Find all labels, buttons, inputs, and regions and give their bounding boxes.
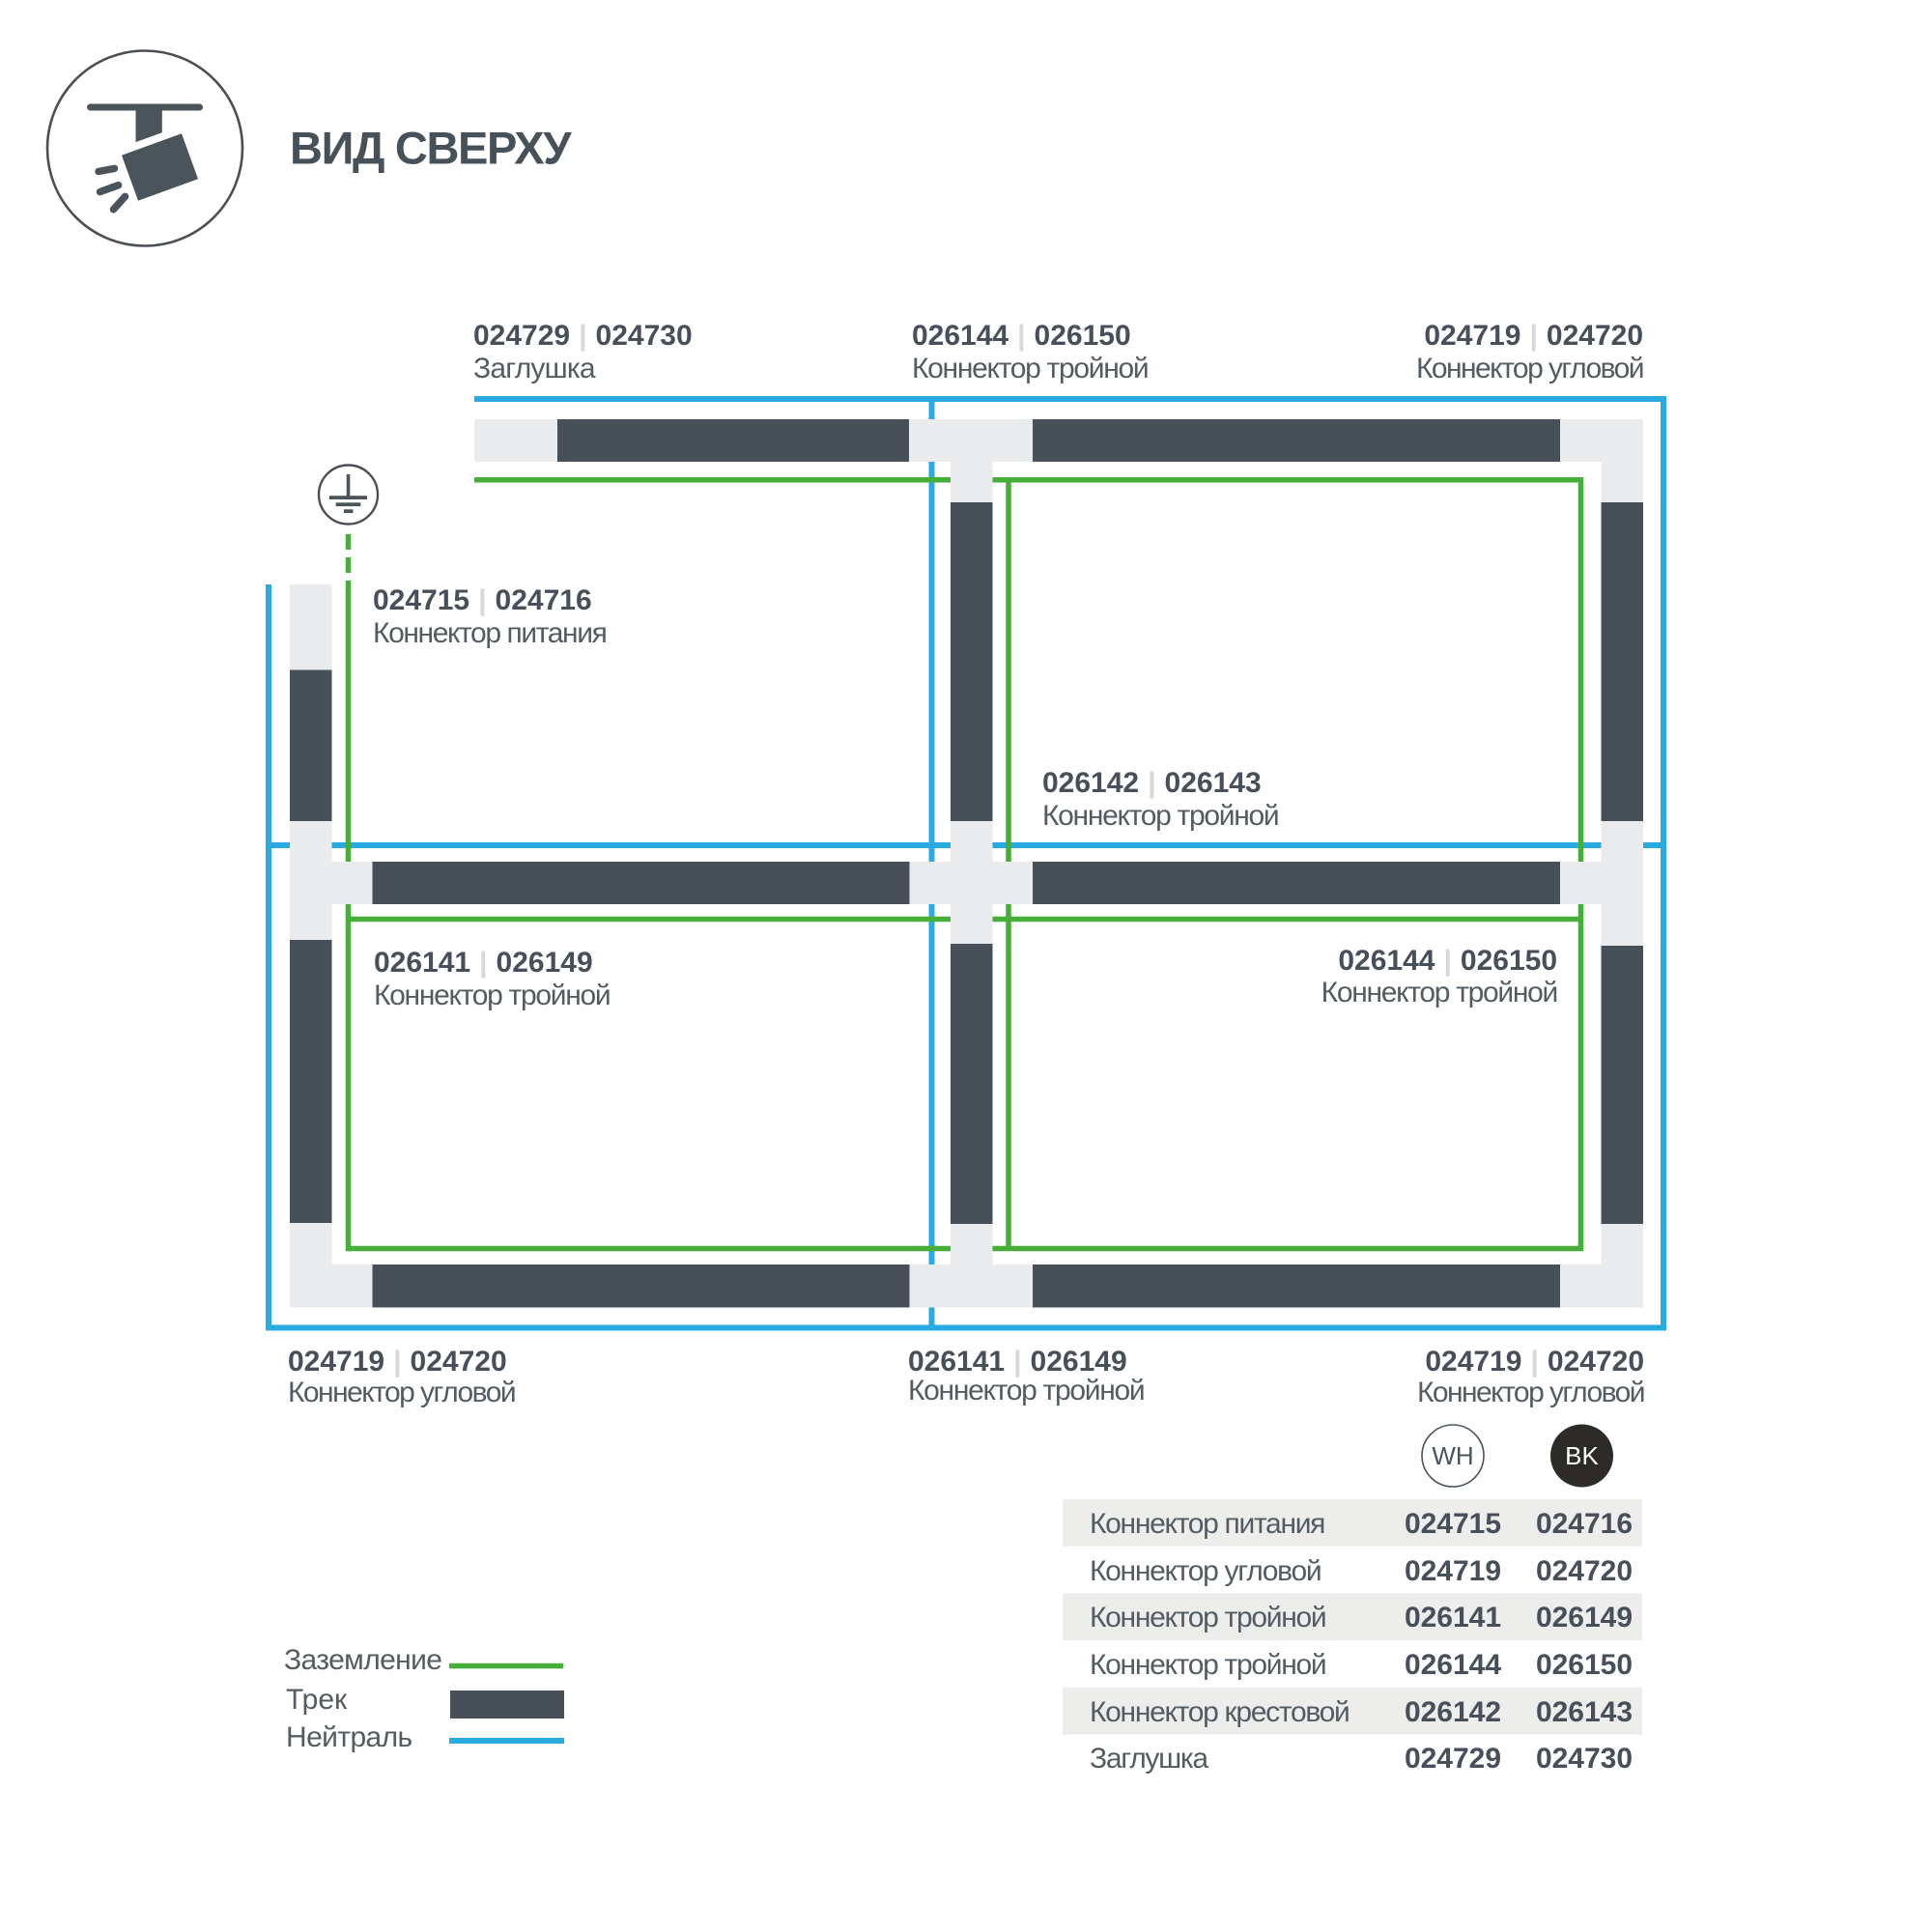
svg-text:024715|024716: 024715|024716 [373,584,592,616]
svg-text:Коннектор тройной: Коннектор тройной [1090,1649,1325,1681]
svg-text:026144|026150: 026144|026150 [912,320,1131,352]
svg-text:026144|026150: 026144|026150 [1338,945,1557,977]
svg-text:024730: 024730 [1536,1743,1633,1775]
svg-text:026143: 026143 [1536,1696,1633,1728]
svg-text:BK: BK [1565,1441,1599,1470]
svg-text:024719|024720: 024719|024720 [288,1346,507,1378]
svg-text:Заглушка: Заглушка [473,353,596,384]
svg-text:Заглушка: Заглушка [1090,1743,1208,1775]
svg-text:Коннектор угловой: Коннектор угловой [288,1377,515,1408]
svg-text:026149: 026149 [1536,1602,1633,1634]
svg-text:Заземление: Заземление [284,1644,441,1676]
svg-text:024715: 024715 [1405,1508,1501,1540]
svg-text:Коннектор угловой: Коннектор угловой [1416,353,1643,384]
svg-text:024719: 024719 [1405,1555,1501,1587]
svg-text:026141: 026141 [1405,1602,1501,1634]
svg-text:026141|026149: 026141|026149 [374,947,593,979]
svg-text:Нейтраль: Нейтраль [286,1721,412,1753]
svg-text:026144: 026144 [1405,1649,1501,1681]
svg-text:Трек: Трек [286,1684,348,1716]
svg-text:Коннектор угловой: Коннектор угловой [1090,1555,1321,1587]
svg-text:Коннектор тройной: Коннектор тройной [912,353,1148,384]
svg-text:Коннектор крестовой: Коннектор крестовой [1090,1696,1349,1728]
svg-text:024716: 024716 [1536,1508,1633,1540]
svg-text:Коннектор тройной: Коннектор тройной [1090,1602,1325,1634]
svg-text:Коннектор питания: Коннектор питания [373,617,607,649]
svg-text:026142: 026142 [1405,1696,1501,1728]
svg-text:Коннектор угловой: Коннектор угловой [1417,1377,1644,1408]
svg-text:Коннектор тройной: Коннектор тройной [1042,800,1278,832]
svg-text:Коннектор тройной: Коннектор тройной [374,980,610,1011]
svg-text:Коннектор тройной: Коннектор тройной [908,1375,1144,1406]
svg-text:026141|026149: 026141|026149 [908,1346,1127,1378]
svg-text:ВИД СВЕРХУ: ВИД СВЕРХУ [290,123,572,174]
svg-text:026142|026143: 026142|026143 [1042,767,1262,799]
svg-text:024720: 024720 [1536,1555,1633,1587]
svg-text:024729|024730: 024729|024730 [473,320,693,352]
svg-text:024719|024720: 024719|024720 [1425,1346,1644,1378]
svg-text:WH: WH [1432,1441,1473,1470]
svg-text:Коннектор питания: Коннектор питания [1090,1508,1324,1540]
svg-text:026150: 026150 [1536,1649,1633,1681]
svg-text:Коннектор тройной: Коннектор тройной [1321,977,1557,1009]
svg-text:024719|024720: 024719|024720 [1424,320,1643,352]
svg-text:024729: 024729 [1405,1743,1501,1775]
